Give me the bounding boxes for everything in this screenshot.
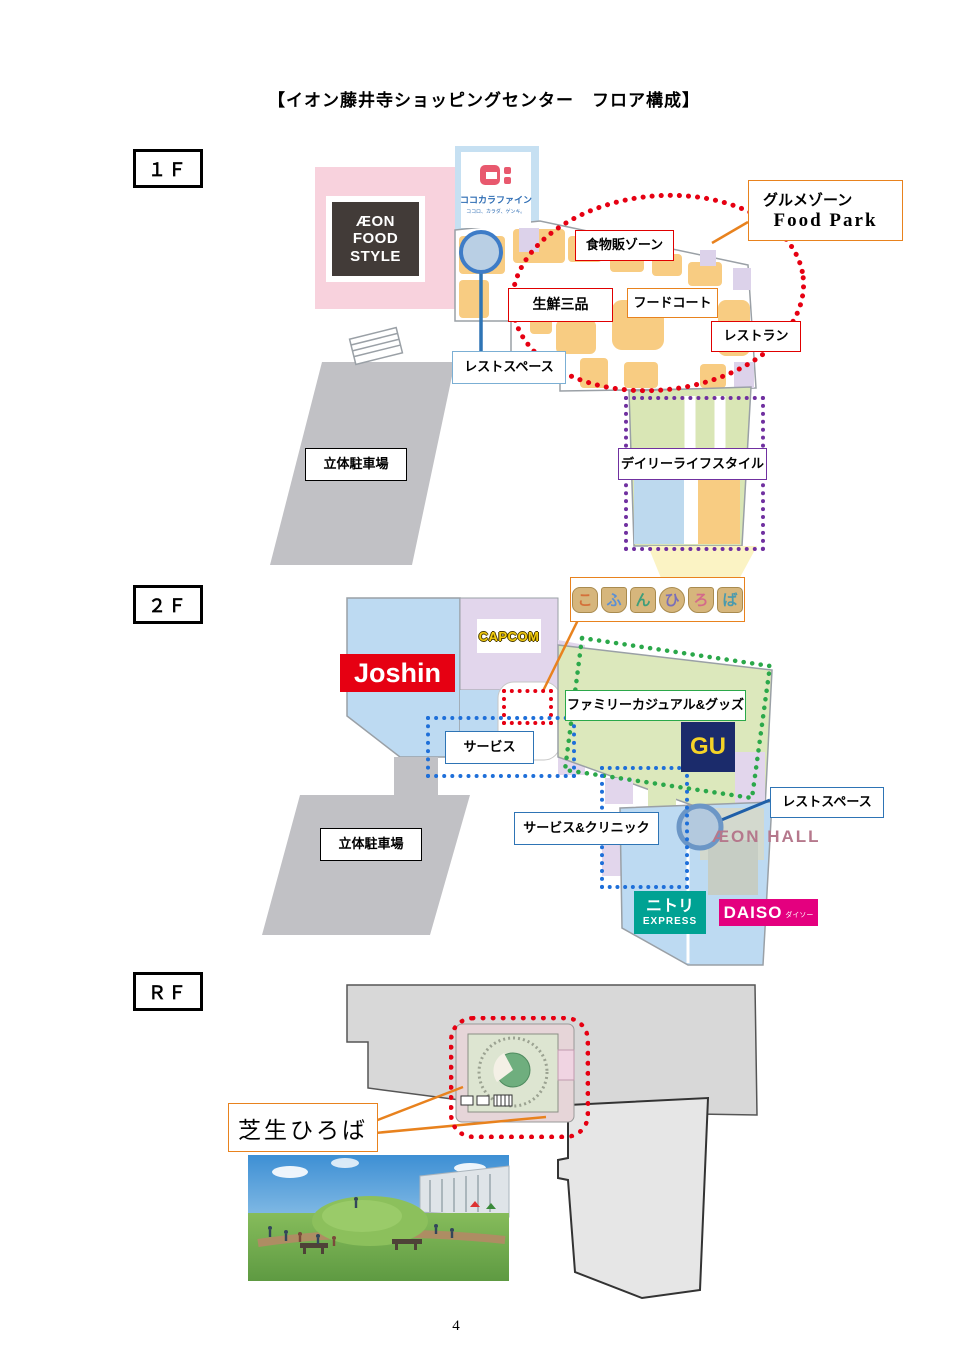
kofun-tile-1: こ (572, 587, 598, 613)
daiso-name: DAISO (724, 903, 783, 923)
page-number: 4 (0, 1318, 912, 1335)
aeon-food-style-logo-inner: ÆON FOOD STYLE (332, 202, 419, 276)
floor-tag-rf: ＲＦ (133, 972, 203, 1011)
kofun-tile-5: ろ (688, 587, 714, 613)
cocokara-fine-tagline: ココロ、カラダ、ゲンキ。 (466, 208, 525, 215)
lawn-plaza-photo (248, 1155, 509, 1281)
rest-space-label-1f: レストスペース (452, 351, 566, 384)
nitori-express-logo: ニトリ EXPRESS (634, 891, 706, 934)
cocokara-fine-name: ココカラファイン (460, 193, 532, 206)
nitori-name: ニトリ (646, 899, 694, 915)
floor-tag-2f: ２Ｆ (133, 585, 203, 624)
parking-label-2f: 立体駐車場 (320, 828, 422, 861)
gourmet-zone-line2: Food Park (773, 210, 877, 232)
kofun-tile-6: ば (717, 587, 743, 613)
cocokara-fine-logo: ココカラファイン ココロ、カラダ、ゲンキ。 (461, 152, 531, 228)
service-label: サービス (445, 731, 534, 764)
parking-label-1f: 立体駐車場 (305, 448, 407, 481)
floor-guide-page: 【イオン藤井寺ショッピングセンター フロア構成】 １Ｆ ２Ｆ ＲＦ 4 ÆON … (0, 0, 968, 1369)
fresh-three-label: 生鮮三品 (508, 288, 613, 322)
nitori-sub: EXPRESS (643, 917, 697, 927)
aeon-food-style-logo: ÆON FOOD STYLE (326, 196, 425, 282)
family-casual-label: ファミリーカジュアル&グッズ (565, 690, 746, 721)
page-title: 【イオン藤井寺ショッピングセンター フロア構成】 (0, 86, 968, 111)
kofun-tile-4: ひ (659, 587, 685, 613)
daiso-sub: ダイソー (785, 910, 813, 920)
service-clinic-label: サービス&クリニック (514, 812, 659, 845)
cocokara-fine-icon (479, 163, 513, 191)
rest-space-label-2f: レストスペース (770, 787, 884, 818)
kofun-hiroba-label: こ ふ ん ひ ろ ば (570, 577, 745, 622)
zone-2f-aeon-hall-back (708, 840, 758, 895)
gourmet-zone-line1: グルメゾーン (763, 189, 852, 210)
gourmet-zone-label: グルメゾーン Food Park (748, 180, 903, 241)
stairs-icon (350, 328, 403, 365)
joshin-logo: Joshin (340, 654, 455, 692)
aeon-hall-label: ÆON HALL (712, 827, 852, 847)
rest-space-circle-1f (461, 232, 501, 272)
food-sales-zone-label: 食物販ゾーン (575, 230, 674, 261)
food-court-label: フードコート (627, 288, 718, 318)
aeon-logo-line1: ÆON (356, 213, 395, 230)
gourmet-label-connector (712, 222, 748, 243)
gu-logo: GU (681, 722, 735, 772)
restaurant-label: レストラン (711, 321, 801, 352)
lawn-plaza-highlight (449, 1016, 590, 1139)
lawn-plaza-label: 芝生ひろば (228, 1103, 378, 1152)
capcom-logo: CAPCOM (477, 619, 541, 653)
daiso-logo: DAISO ダイソー (719, 899, 818, 926)
kofun-tile-2: ふ (601, 587, 627, 613)
floor-tag-1f: １Ｆ (133, 149, 203, 188)
aeon-logo-line2: FOOD (353, 230, 398, 247)
daily-lifestyle-label: デイリーライフスタイル (618, 448, 767, 480)
kofun-tile-3: ん (630, 587, 656, 613)
aeon-logo-line3: STYLE (350, 248, 401, 265)
